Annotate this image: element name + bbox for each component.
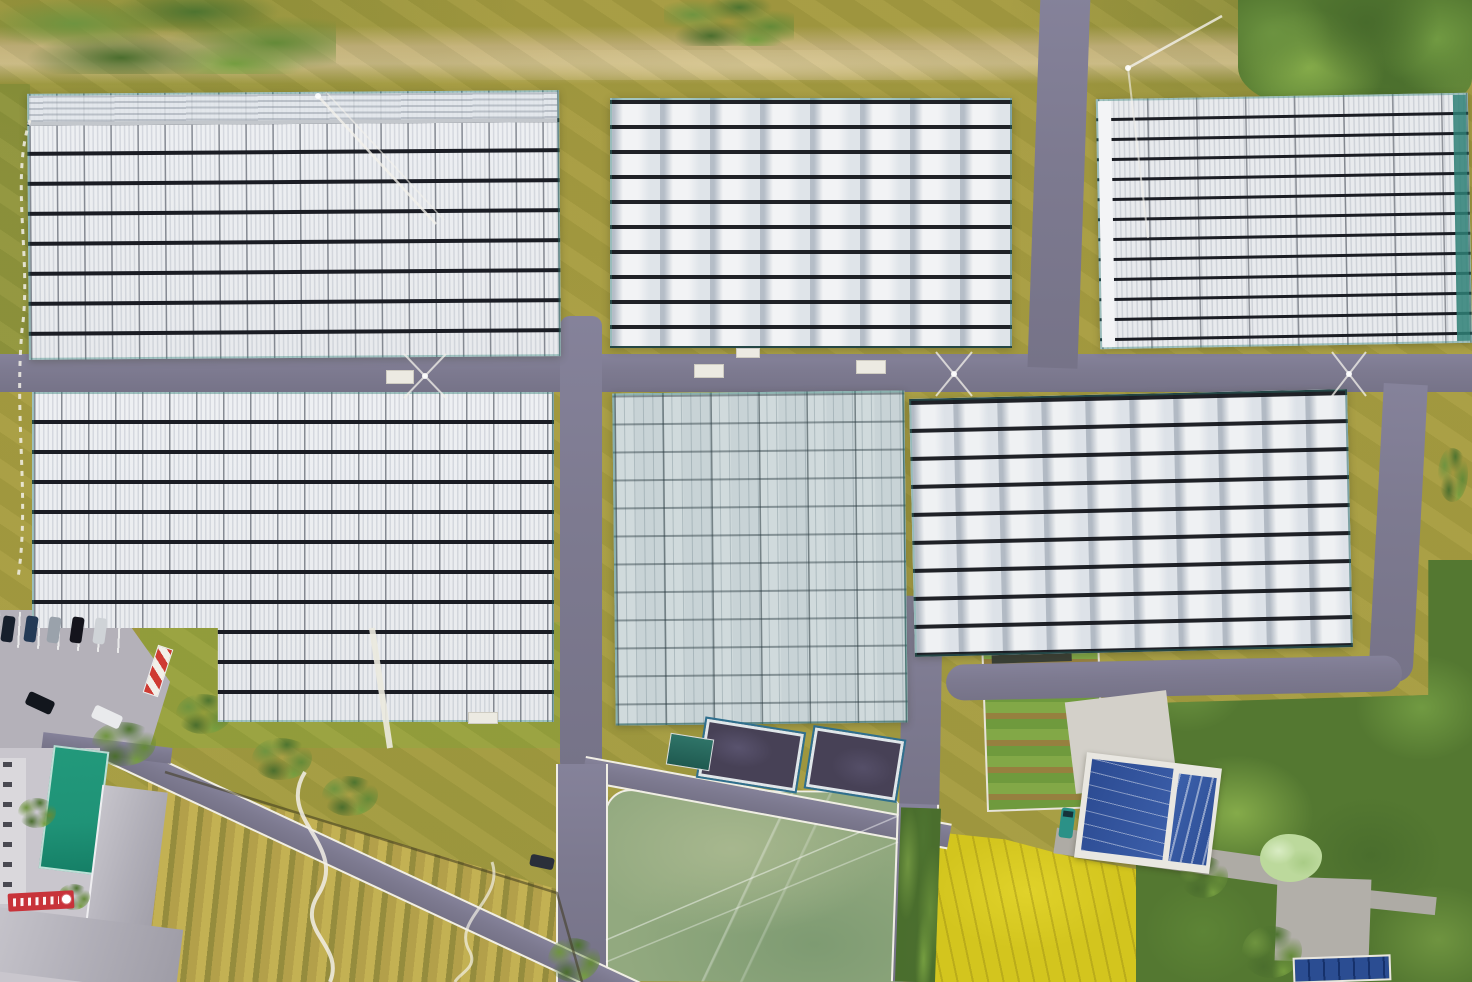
blue-roof-annex [1168,773,1216,865]
office-windows [3,762,12,898]
aerial-photo-canvas [0,0,1472,982]
greenhouse-endwall-band [1098,101,1115,347]
sign-flower-logo [61,893,73,905]
service-pad [386,370,414,384]
greenhouse-block-top-right [1096,93,1472,349]
greenhouse-block-middle-right [909,389,1353,657]
trees-top-center [664,0,794,46]
trees-top-left [0,0,336,74]
solar-panel-array [1293,954,1392,982]
service-pad [694,364,724,378]
gravel-strip [420,50,1080,80]
red-banner-sign [8,890,75,911]
greenhouse-block-top-left [27,90,561,360]
service-pad [856,360,886,374]
truck-windshield [1063,810,1074,817]
main-road-horizontal [0,354,1472,392]
bush-right-road [1438,448,1468,502]
road-right-vertical [1368,383,1428,683]
tree-strip-rice-edge [895,807,941,982]
car-on-road [529,854,555,871]
greenhouse-ridge-band [29,92,557,126]
greenhouse-block-middle-center [612,390,907,725]
tree-cluster [322,776,378,816]
greenhouse-block-top-center [610,98,1012,348]
office-west-wing [0,758,26,904]
farm-building [1074,752,1222,874]
grass-patch-left [0,84,30,376]
service-pad [736,348,760,358]
tree-cluster [252,738,312,780]
road-center-vertical [560,316,602,772]
service-pad [468,712,498,724]
sign-characters [13,896,59,906]
blue-roof-main [1081,759,1174,860]
pump-shed-roof [666,733,714,771]
greenhouse-gutter-teal [1453,95,1470,341]
